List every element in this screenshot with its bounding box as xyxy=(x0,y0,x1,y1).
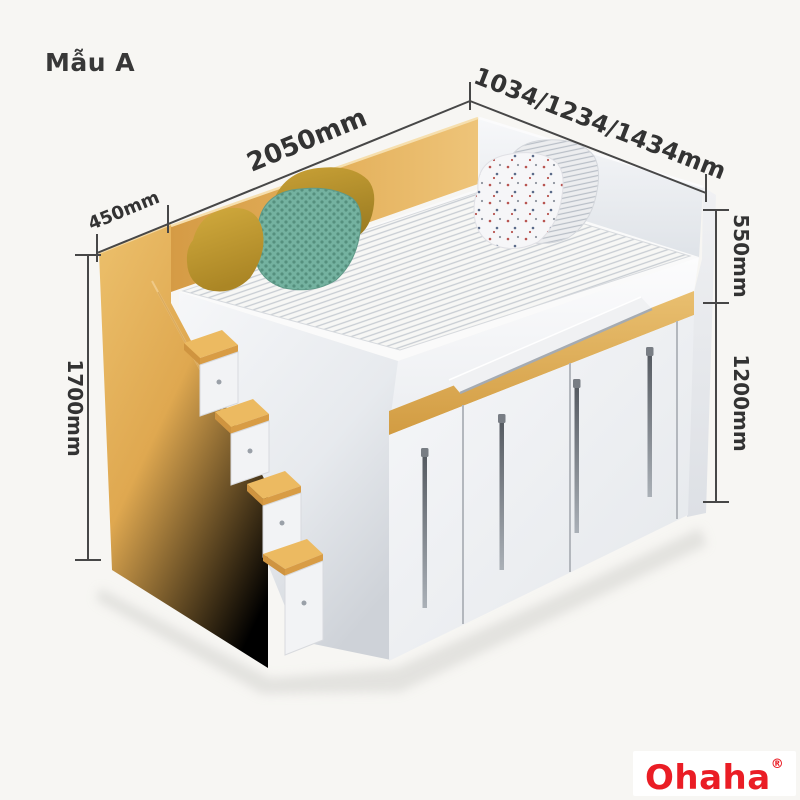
logo-text: Ohaha® xyxy=(645,757,784,798)
dimension-label-cabinet-height: 1200mm xyxy=(729,354,753,451)
drawer-knob xyxy=(217,380,222,385)
drawer-knob xyxy=(248,449,253,454)
drawer-knob xyxy=(280,521,285,526)
drawer-knob xyxy=(302,601,307,606)
stair-drawer xyxy=(285,561,323,655)
dimension-label-total-height: 1700mm xyxy=(63,359,87,456)
product-diagram: 450mm 2050mm 1034/1234/1434mm 1700mm 550… xyxy=(0,0,800,800)
model-label: Mẫu A xyxy=(45,48,135,77)
brand-logo: Ohaha® xyxy=(633,751,796,798)
product-dimension-diagram: 450mm 2050mm 1034/1234/1434mm 1700mm 550… xyxy=(0,0,800,800)
dimension-label-upper-height: 550mm xyxy=(729,214,753,297)
